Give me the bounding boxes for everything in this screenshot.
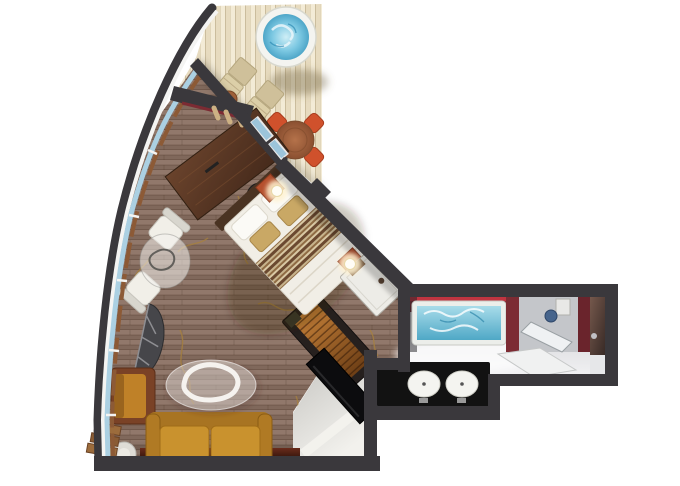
entry-door xyxy=(590,297,605,374)
alcove-right-wall xyxy=(488,376,500,420)
door-threshold xyxy=(590,355,605,374)
faucet xyxy=(419,398,428,403)
shower-control xyxy=(556,299,570,315)
sofa-cushion xyxy=(211,426,260,460)
floor-plan xyxy=(0,0,680,486)
bathtub xyxy=(412,301,506,345)
floor-plan-canvas xyxy=(0,0,680,486)
bathroom-top-wall xyxy=(398,284,618,297)
lamp xyxy=(272,186,283,197)
bathroom-bottom-wall xyxy=(488,374,618,386)
hot-tub xyxy=(256,7,316,67)
glass-side-table xyxy=(140,234,190,288)
sofa xyxy=(146,412,272,463)
faucet xyxy=(457,398,466,403)
shower-head xyxy=(545,310,557,322)
hall-right-wall xyxy=(364,350,377,471)
alcove-top-wall xyxy=(377,358,401,370)
maroon-partition xyxy=(506,297,519,352)
sofa-cushion xyxy=(160,426,209,460)
lamp xyxy=(345,259,356,270)
bathroom-right-wall xyxy=(605,284,618,386)
bottom-wall xyxy=(94,456,380,471)
maroon-partition xyxy=(578,297,590,352)
alcove-bottom-wall xyxy=(370,406,500,420)
shower xyxy=(519,297,580,352)
hot-tub-water xyxy=(263,14,309,60)
door-handle xyxy=(591,333,597,339)
